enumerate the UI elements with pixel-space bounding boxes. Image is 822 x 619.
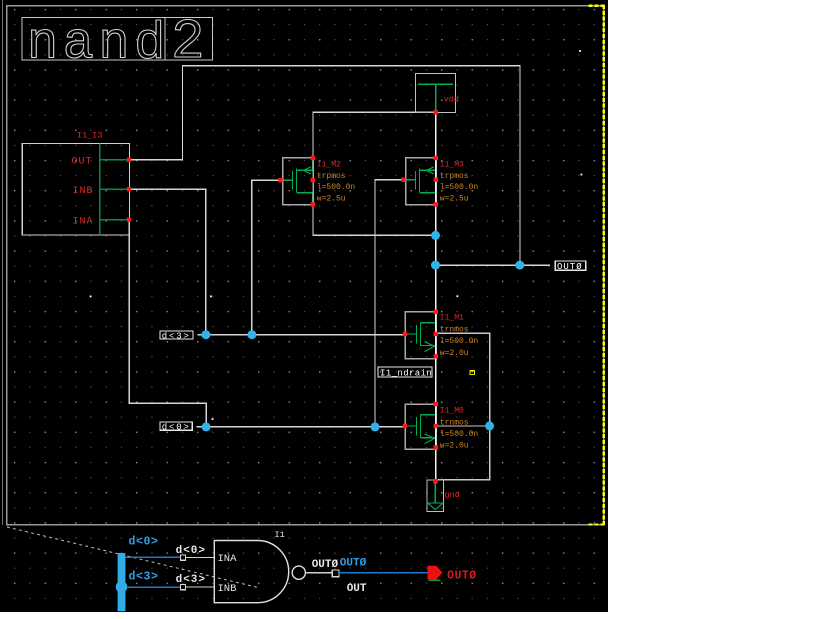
svg-text:d<0>: d<0>: [176, 545, 206, 557]
svg-text:OUT: OUT: [72, 157, 93, 168]
svg-text:w=2.0u: w=2.0u: [440, 349, 469, 358]
svg-text:d<3>: d<3>: [176, 574, 206, 586]
svg-text:INB: INB: [218, 583, 237, 595]
svg-text:trnmos: trnmos: [440, 325, 469, 334]
svg-text:I1_ndrain: I1_ndrain: [380, 369, 432, 379]
svg-text:INA: INA: [218, 553, 238, 565]
svg-text:2: 2: [171, 10, 205, 74]
svg-text:d<3>: d<3>: [129, 571, 159, 584]
svg-text:w=2.0u: w=2.0u: [440, 441, 469, 450]
svg-text:d<0>: d<0>: [129, 535, 159, 548]
svg-text:OUTØ: OUTØ: [557, 262, 583, 272]
svg-text:INB: INB: [73, 186, 94, 197]
svg-text:OUTØ: OUTØ: [312, 559, 339, 571]
svg-text:I1_M3: I1_M3: [440, 161, 464, 170]
svg-text:trpmos: trpmos: [440, 172, 469, 181]
svg-text:l=500.0n: l=500.0n: [440, 337, 479, 346]
svg-text:vdd: vdd: [444, 95, 459, 105]
svg-text:d<0>: d<0>: [162, 423, 191, 433]
svg-text:w=2.5u: w=2.5u: [440, 195, 469, 204]
svg-text:l=500.0n: l=500.0n: [440, 430, 479, 439]
svg-text:OUTØ: OUTØ: [340, 558, 367, 570]
svg-text:OUTØ: OUTØ: [447, 570, 477, 583]
svg-text:gnd: gnd: [445, 490, 460, 500]
svg-text:l=500.0n: l=500.0n: [440, 183, 479, 192]
svg-text:trnmos: trnmos: [440, 418, 469, 427]
svg-text:INA: INA: [73, 216, 94, 227]
svg-text:I1_M0: I1_M0: [440, 407, 464, 416]
svg-text:w=2.5u: w=2.5u: [317, 195, 346, 204]
svg-text:l=500.0n: l=500.0n: [317, 183, 356, 192]
svg-text:I1: I1: [275, 530, 285, 540]
svg-text:OUT: OUT: [347, 583, 367, 595]
svg-text:d<3>: d<3>: [162, 331, 191, 341]
svg-text:trpmos: trpmos: [317, 172, 346, 181]
svg-text:nand: nand: [27, 15, 170, 74]
svg-text:I1_M2: I1_M2: [317, 161, 341, 170]
svg-text:I1_I3: I1_I3: [77, 131, 103, 141]
svg-text:I1_M1: I1_M1: [440, 313, 464, 322]
